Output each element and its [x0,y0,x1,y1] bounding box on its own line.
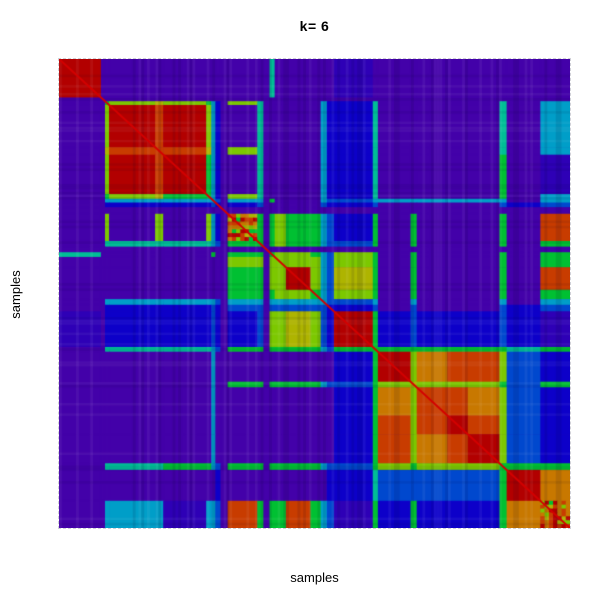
consensus-plot-figure: k= 6 samples samples [0,0,600,600]
chart-title: k= 6 [59,18,570,34]
x-axis-label: samples [59,570,570,585]
consensus-heatmap [59,59,570,528]
y-axis-label: samples [8,60,23,529]
